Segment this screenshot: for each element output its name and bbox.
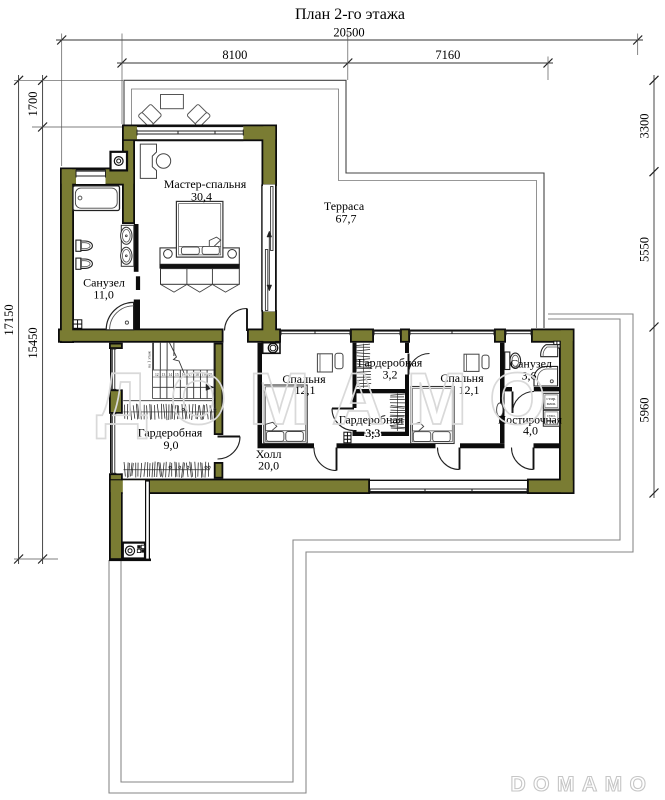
svg-text:5550: 5550 <box>638 237 652 262</box>
svg-text:20500: 20500 <box>333 26 364 40</box>
svg-text:7160: 7160 <box>435 48 460 62</box>
svg-text:20,0: 20,0 <box>258 459 279 473</box>
svg-text:17150: 17150 <box>2 304 16 335</box>
svg-text:9,0: 9,0 <box>164 438 179 452</box>
svg-text:План 2-го этажа: План 2-го этажа <box>295 6 405 23</box>
svg-text:ДОМАМО: ДОМАМО <box>96 359 568 440</box>
svg-text:11,0: 11,0 <box>93 288 114 302</box>
svg-text:1700: 1700 <box>26 92 40 117</box>
svg-text:8100: 8100 <box>222 48 247 62</box>
svg-text:15450: 15450 <box>26 327 40 358</box>
svg-text:67,7: 67,7 <box>336 212 357 226</box>
svg-text:30,4: 30,4 <box>191 190 212 204</box>
svg-text:3300: 3300 <box>638 114 652 139</box>
svg-text:DOMAMO: DOMAMO <box>511 773 654 796</box>
svg-text:5960: 5960 <box>638 398 652 423</box>
